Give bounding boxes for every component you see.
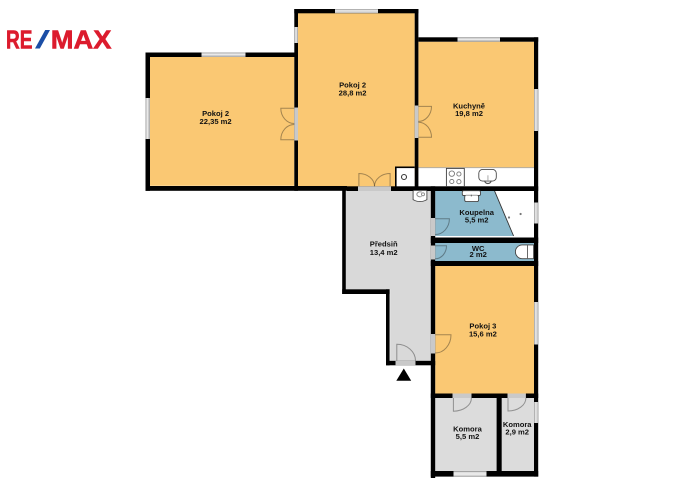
svg-text:MAX: MAX	[51, 27, 112, 55]
svg-text:5,5 m2: 5,5 m2	[465, 215, 489, 224]
svg-text:2 m2: 2 m2	[470, 250, 487, 259]
svg-text:RE: RE	[6, 27, 33, 55]
svg-text:19,8 m2: 19,8 m2	[455, 109, 483, 118]
svg-text:22,35 m2: 22,35 m2	[200, 117, 232, 126]
svg-text:15,6 m2: 15,6 m2	[469, 330, 497, 339]
svg-text:5,5 m2: 5,5 m2	[456, 432, 480, 441]
svg-text:13,4 m2: 13,4 m2	[370, 248, 398, 257]
svg-text:2,9 m2: 2,9 m2	[505, 428, 529, 437]
svg-text:28,8 m2: 28,8 m2	[339, 89, 367, 98]
